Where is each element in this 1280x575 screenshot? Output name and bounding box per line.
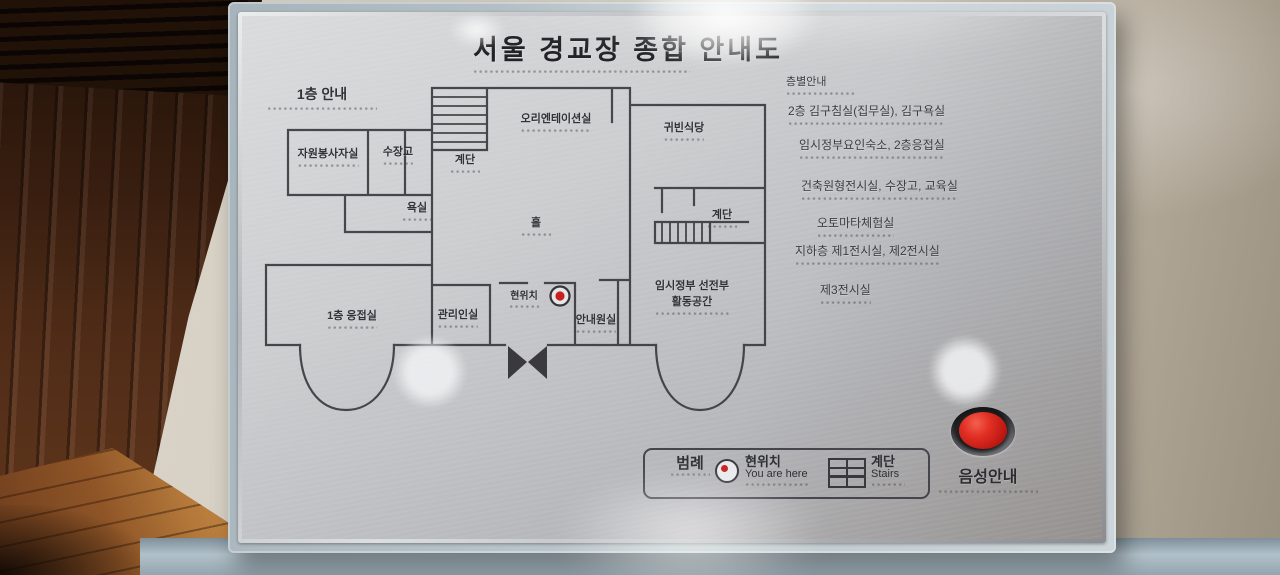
current-location-marker [551, 287, 570, 306]
photo-scene: 서울 경교장 종합 안내도 1층 안내 오리엔테이션실 귀빈식당 자원봉사자실 … [0, 0, 1280, 575]
directory-line-2f-3: 건축원형전시실, 수장고, 교육실 [801, 177, 958, 204]
braille-dots [820, 300, 871, 308]
braille-dots [327, 325, 377, 333]
room-label-stairs-right: 계단 [707, 206, 737, 232]
legend-box: 범례 현위치 You are here 계단 Stairs [643, 448, 930, 499]
braille-dots [786, 91, 856, 99]
braille-dots [473, 69, 690, 77]
sign-title: 서울 경교장 종합 안내도 [473, 28, 783, 77]
room-label-caretaker: 관리인실 [438, 306, 478, 332]
braille-dots [788, 121, 945, 129]
sign-content: 서울 경교장 종합 안내도 1층 안내 오리엔테이션실 귀빈식당 자원봉사자실 … [0, 0, 1280, 575]
braille-dots [576, 329, 616, 337]
braille-dots [670, 472, 710, 480]
braille-dots [509, 304, 539, 312]
you-are-here-icon [715, 459, 739, 483]
room-label-current-location: 현위치 [509, 287, 539, 312]
directory-line-basement-2: 제3전시실 [820, 281, 871, 308]
braille-dots [402, 217, 432, 225]
legend-current-location: 현위치 You are here [745, 455, 808, 490]
directory-line-2f-2: 임시정부요인숙소, 2층응접실 [799, 136, 945, 163]
braille-dots [383, 161, 413, 169]
stairs-hatch-right [662, 222, 702, 243]
braille-dots [298, 163, 359, 171]
braille-dots [664, 137, 704, 145]
braille-dots [267, 106, 377, 114]
stairs-icon [828, 458, 866, 488]
braille-dots [801, 196, 958, 204]
braille-dots [795, 261, 940, 269]
legend-heading: 범례 [670, 457, 710, 480]
braille-dots [871, 482, 905, 490]
room-label-orientation: 오리엔테이션실 [521, 110, 592, 136]
floor-heading: 1층 안내 [267, 84, 377, 114]
room-label-stairs-left: 계단 [450, 151, 480, 177]
room-label-volunteer: 자원봉사자실 [298, 145, 359, 171]
directory-line-automata: 오토마타체험실 [817, 214, 894, 241]
audio-guide-label: 음성안내 [938, 463, 1038, 497]
room-label-reception: 1층 응접실 [327, 307, 377, 333]
braille-dots [707, 224, 737, 232]
stairs-hatch-left [433, 97, 487, 142]
room-label-bathroom: 욕실 [402, 199, 432, 225]
braille-dots [938, 489, 1038, 497]
directory-line-basement-1: 지하층 제1전시실, 제2전시실 [795, 242, 940, 269]
directory-line-2f-1: 2층 김구침실(집무실), 김구욕실 [788, 102, 945, 129]
room-label-storage: 수장고 [383, 143, 413, 169]
audio-guide-button[interactable] [959, 412, 1007, 449]
room-label-guide-office: 안내원실 [576, 311, 616, 337]
room-label-propaganda-space: 임시정부 선전부 활동공간 [655, 277, 729, 319]
braille-dots [745, 482, 808, 490]
sign-title-text: 서울 경교장 종합 안내도 [473, 28, 783, 67]
audio-button-recess [951, 407, 1015, 456]
braille-dots [521, 232, 551, 240]
legend-stairs: 계단 Stairs [871, 455, 905, 490]
floor-plan-drawing [0, 0, 1280, 575]
room-label-vip-dining: 귀빈식당 [664, 119, 704, 145]
entrance-door-icon [508, 346, 547, 379]
braille-dots [655, 311, 729, 319]
braille-dots [450, 169, 480, 177]
directory-heading: 층별안내 [786, 73, 856, 99]
plan-bay-windows [300, 345, 744, 410]
room-label-hall: 홀 [521, 214, 551, 240]
braille-dots [521, 128, 592, 136]
braille-dots [438, 324, 478, 332]
braille-dots [799, 155, 945, 163]
braille-dots [817, 233, 894, 241]
